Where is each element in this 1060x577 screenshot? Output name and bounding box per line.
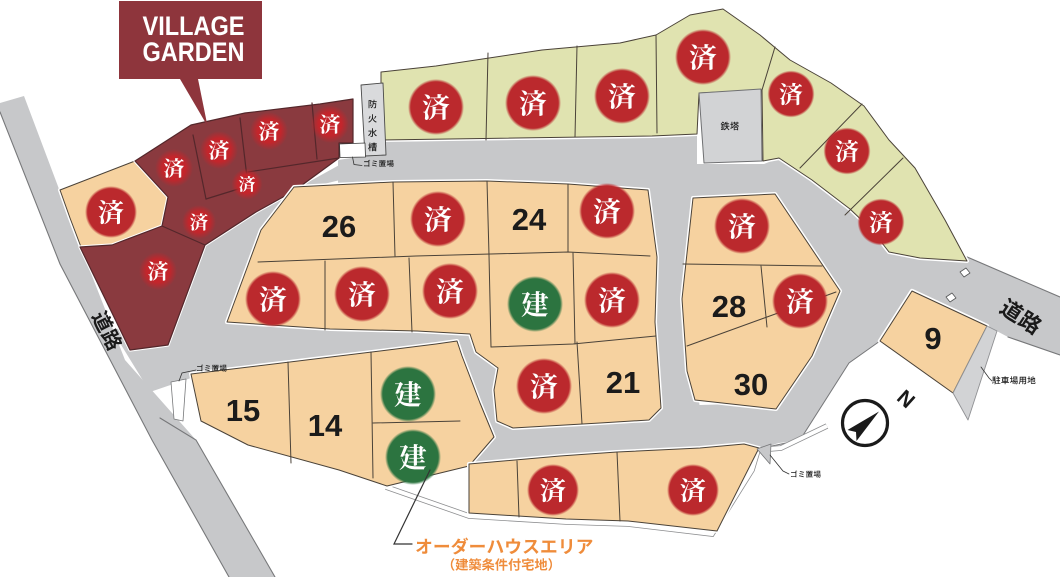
svg-text:30: 30 xyxy=(734,367,768,402)
svg-text:15: 15 xyxy=(226,393,260,428)
svg-text:9: 9 xyxy=(924,321,941,356)
svg-text:26: 26 xyxy=(322,209,356,244)
svg-text:21: 21 xyxy=(606,365,640,400)
svg-text:GARDEN: GARDEN xyxy=(143,37,245,67)
svg-text:14: 14 xyxy=(308,408,343,443)
svg-text:24: 24 xyxy=(512,202,547,237)
svg-text:N: N xyxy=(892,386,919,413)
svg-text:28: 28 xyxy=(712,289,746,324)
